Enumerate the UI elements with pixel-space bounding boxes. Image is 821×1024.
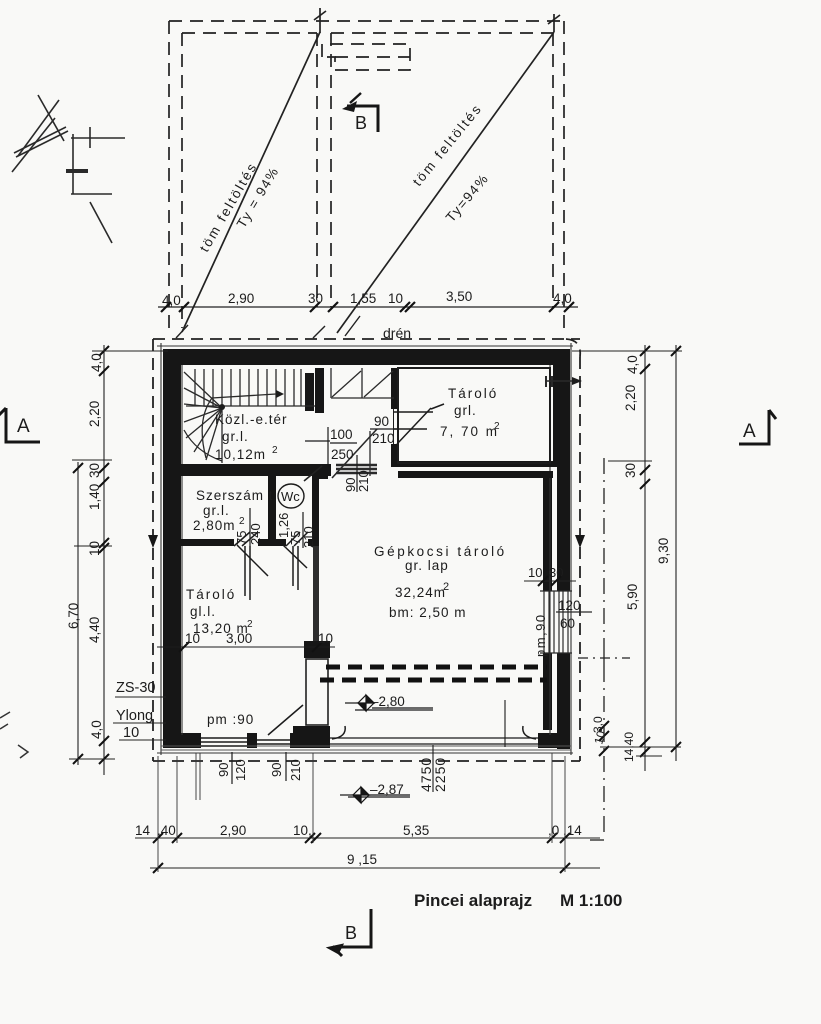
svg-text:1,40: 1,40: [87, 484, 102, 510]
svg-text:gr.l.: gr.l.: [222, 429, 249, 444]
svg-text:gr.l.: gr.l.: [203, 503, 230, 518]
svg-text:2,90: 2,90: [220, 823, 246, 838]
svg-text:10,: 10,: [293, 823, 312, 838]
svg-text:4,40: 4,40: [87, 617, 102, 643]
svg-text:2,20: 2,20: [623, 385, 638, 411]
svg-text:4,0: 4,0: [162, 293, 181, 308]
svg-text:10: 10: [591, 729, 608, 746]
svg-text:M 1:100: M 1:100: [560, 891, 622, 910]
svg-text:120: 120: [558, 598, 581, 613]
svg-text:2: 2: [239, 516, 245, 527]
svg-text:5,35: 5,35: [403, 823, 429, 838]
svg-text:Ty=94%: Ty=94%: [443, 171, 492, 225]
svg-text:2: 2: [443, 581, 449, 593]
svg-text:Tároló: Tároló: [448, 386, 498, 401]
svg-text:90: 90: [216, 763, 231, 777]
svg-text:Wc: Wc: [281, 489, 300, 504]
svg-text:Pincei alaprajz: Pincei alaprajz: [414, 891, 532, 910]
svg-text:B: B: [355, 113, 367, 133]
svg-text:10: 10: [87, 541, 102, 556]
svg-text:30: 30: [308, 291, 323, 306]
svg-text:1,55: 1,55: [350, 291, 376, 306]
svg-text:14: 14: [135, 823, 151, 838]
svg-text:2: 2: [247, 619, 253, 630]
svg-text:A: A: [743, 421, 756, 442]
svg-text:gl.l.: gl.l.: [190, 604, 216, 619]
svg-text:Gépkocsi tároló: Gépkocsi tároló: [374, 544, 507, 559]
svg-text:pm :90: pm :90: [207, 712, 254, 727]
svg-text:100: 100: [330, 427, 353, 442]
svg-text:7, 70 m: 7, 70 m: [440, 424, 499, 439]
svg-text:bm: 2,50 m: bm: 2,50 m: [389, 605, 467, 620]
svg-text:grl.: grl.: [454, 403, 477, 418]
svg-text:töm feltöltés: töm feltöltés: [410, 101, 485, 189]
svg-text:10,12m: 10,12m: [215, 447, 266, 462]
svg-text:10: 10: [528, 565, 542, 580]
svg-text:–2,80: –2,80: [371, 694, 405, 709]
svg-text:6,70: 6,70: [66, 603, 81, 629]
svg-text:10: 10: [185, 631, 200, 646]
svg-text:14,40: 14,40: [622, 732, 636, 762]
svg-text:2: 2: [272, 445, 278, 456]
svg-text:2,20: 2,20: [87, 401, 102, 427]
svg-text:30: 30: [623, 463, 638, 478]
svg-text:Közl.-e.tér: Közl.-e.tér: [215, 412, 288, 427]
svg-text:90: 90: [269, 763, 284, 777]
svg-text:60: 60: [560, 616, 575, 631]
svg-text:9 ,15: 9 ,15: [347, 852, 377, 867]
svg-text:3,50: 3,50: [446, 289, 472, 304]
svg-text:240: 240: [248, 523, 263, 545]
svg-text:90: 90: [374, 414, 389, 429]
svg-text:75: 75: [234, 531, 249, 545]
svg-text:ZS-30: ZS-30: [116, 680, 156, 696]
svg-text:3,00: 3,00: [226, 631, 252, 646]
svg-text:B: B: [345, 923, 357, 943]
svg-text:2250: 2250: [432, 757, 448, 792]
svg-text:4,0: 4,0: [89, 353, 104, 372]
svg-text:10: 10: [388, 291, 403, 306]
svg-text:210: 210: [301, 526, 316, 548]
svg-text:30: 30: [87, 463, 102, 478]
svg-text:Szerszám t: Szerszám t: [196, 488, 274, 503]
svg-text:250: 250: [331, 447, 354, 462]
svg-text:10: 10: [318, 631, 333, 646]
svg-text:30: 30: [549, 565, 563, 580]
svg-text:32,24m: 32,24m: [395, 585, 446, 600]
svg-text:Ylong: Ylong: [116, 708, 153, 724]
svg-text:9,30: 9,30: [656, 538, 671, 564]
svg-text:A: A: [17, 416, 30, 437]
svg-text:210: 210: [356, 470, 371, 492]
svg-text:5,90: 5,90: [625, 584, 640, 610]
svg-text:210: 210: [372, 431, 395, 446]
svg-text:210: 210: [288, 759, 303, 781]
svg-text:4,0: 4,0: [553, 291, 572, 306]
svg-text:2: 2: [494, 421, 500, 432]
svg-text:gr. lap: gr. lap: [405, 558, 449, 573]
svg-text:4,0: 4,0: [625, 355, 640, 374]
svg-text:,40: ,40: [157, 823, 176, 838]
svg-text:10: 10: [123, 725, 139, 741]
svg-text:Tároló: Tároló: [186, 587, 236, 602]
svg-text:pm,90: pm,90: [533, 613, 548, 657]
svg-text:2,90: 2,90: [228, 291, 254, 306]
svg-text:2,80m: 2,80m: [193, 518, 236, 533]
svg-text:120: 120: [233, 759, 248, 781]
svg-text:4,0: 4,0: [89, 720, 104, 739]
